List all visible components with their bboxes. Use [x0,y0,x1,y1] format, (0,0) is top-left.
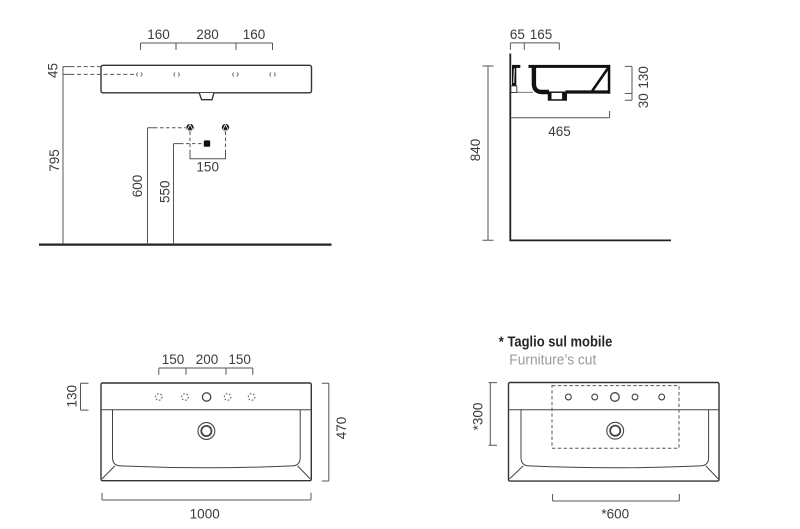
svg-text:Furniture’s cut: Furniture’s cut [509,353,596,369]
svg-text:150: 150 [228,352,251,367]
svg-text:*300: *300 [471,403,486,431]
svg-text:840: 840 [468,139,483,162]
svg-text:470: 470 [334,417,349,440]
svg-text:550: 550 [157,180,172,203]
svg-text:160: 160 [243,27,266,42]
svg-text:*600: *600 [601,506,629,521]
svg-text:165: 165 [530,27,553,42]
svg-text:130: 130 [636,66,651,89]
svg-text:150: 150 [162,352,185,367]
svg-text:280: 280 [196,27,219,42]
svg-text:200: 200 [196,352,219,367]
svg-text:65: 65 [510,27,525,42]
svg-text:160: 160 [147,27,170,42]
svg-text:30: 30 [636,93,651,108]
svg-text:130: 130 [64,385,79,408]
svg-text:* Taglio sul mobile: * Taglio sul mobile [499,335,613,351]
svg-text:795: 795 [47,149,62,172]
svg-text:45: 45 [45,63,60,78]
svg-text:1000: 1000 [190,506,220,521]
svg-text:465: 465 [548,124,571,139]
svg-text:150: 150 [196,160,219,175]
svg-text:600: 600 [130,175,145,198]
